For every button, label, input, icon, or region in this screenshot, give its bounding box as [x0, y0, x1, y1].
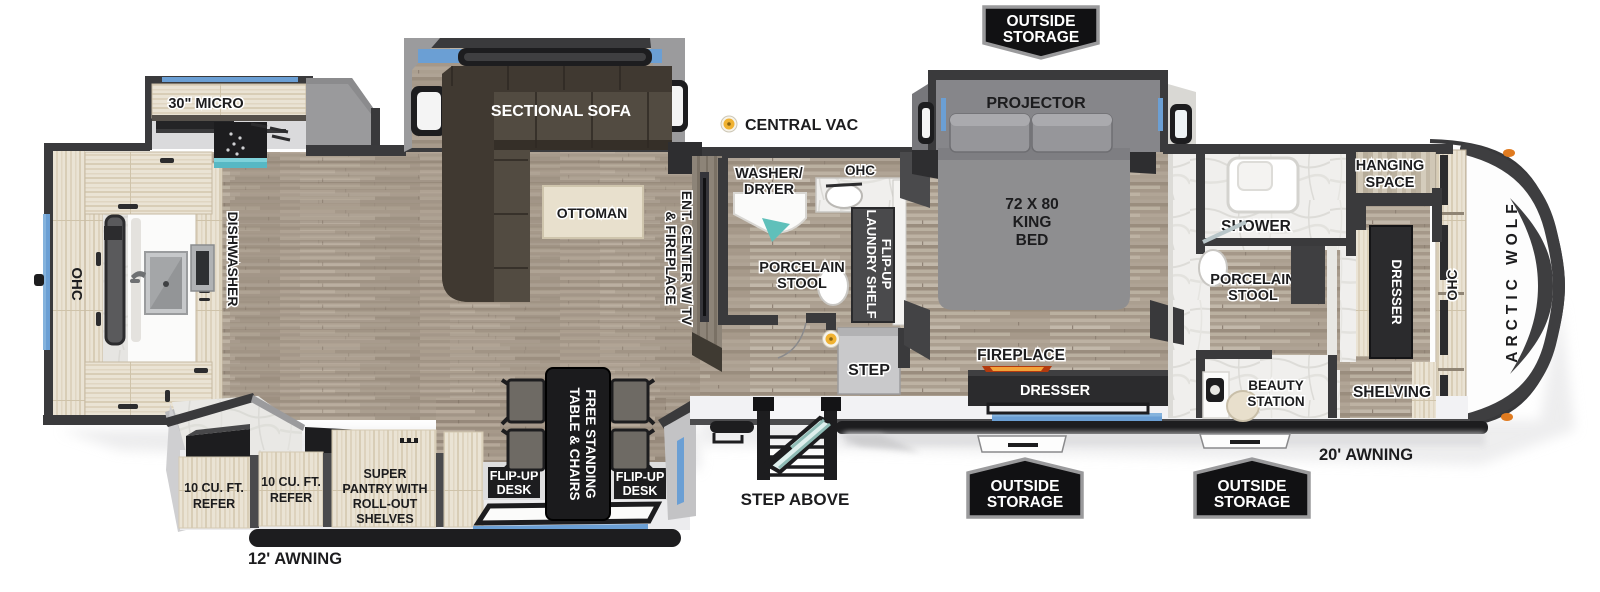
- svg-text:SECTIONAL SOFA: SECTIONAL SOFA: [491, 103, 632, 120]
- svg-text:STOOL: STOOL: [777, 276, 827, 292]
- svg-text:STORAGE: STORAGE: [1003, 29, 1079, 46]
- svg-text:ARCTIC WOLF: ARCTIC WOLF: [1504, 199, 1521, 362]
- svg-text:ENT. CENTER W/ TV: ENT. CENTER W/ TV: [679, 191, 695, 326]
- svg-text:ROLL-OUT: ROLL-OUT: [353, 497, 418, 511]
- svg-text:BEAUTY: BEAUTY: [1248, 378, 1304, 393]
- svg-text:30" MICRO: 30" MICRO: [168, 96, 243, 112]
- svg-text:BED: BED: [1016, 232, 1049, 249]
- svg-text:DRESSER: DRESSER: [1389, 259, 1404, 325]
- svg-text:DRESSER: DRESSER: [1020, 383, 1091, 399]
- svg-text:DESK: DESK: [623, 484, 658, 498]
- svg-text:& FIREPLACE: & FIREPLACE: [663, 211, 679, 304]
- svg-text:STEP ABOVE: STEP ABOVE: [741, 490, 850, 509]
- svg-text:WASHER/: WASHER/: [735, 166, 803, 182]
- svg-text:DESK: DESK: [497, 483, 532, 497]
- svg-text:DRYER: DRYER: [744, 182, 795, 198]
- svg-text:OHC: OHC: [1444, 269, 1460, 300]
- svg-text:STATION: STATION: [1247, 394, 1304, 409]
- svg-text:STEP: STEP: [848, 362, 890, 379]
- svg-text:FLIP-UP: FLIP-UP: [879, 239, 894, 290]
- svg-text:STORAGE: STORAGE: [987, 494, 1063, 511]
- svg-text:OUTSIDE: OUTSIDE: [991, 478, 1060, 495]
- svg-text:FIREPLACE: FIREPLACE: [977, 347, 1065, 364]
- svg-text:OHC: OHC: [845, 163, 875, 178]
- svg-text:PORCELAIN: PORCELAIN: [759, 260, 844, 276]
- svg-text:REFER: REFER: [193, 497, 235, 511]
- svg-text:OTTOMAN: OTTOMAN: [557, 205, 628, 221]
- svg-text:20' AWNING: 20' AWNING: [1319, 446, 1413, 464]
- svg-text:SPACE: SPACE: [1366, 175, 1415, 191]
- svg-text:PROJECTOR: PROJECTOR: [986, 95, 1086, 112]
- svg-text:DISHWASHER: DISHWASHER: [225, 212, 241, 307]
- svg-text:SUPER: SUPER: [363, 467, 406, 481]
- svg-text:LAUNDRY SHELF: LAUNDRY SHELF: [864, 209, 879, 318]
- svg-text:REFER: REFER: [270, 491, 312, 505]
- svg-text:PANTRY WITH: PANTRY WITH: [342, 482, 427, 496]
- svg-text:SHELVES: SHELVES: [356, 512, 413, 526]
- svg-text:OHC: OHC: [68, 267, 85, 301]
- svg-text:KING: KING: [1013, 214, 1052, 231]
- svg-text:72 X 80: 72 X 80: [1005, 196, 1058, 213]
- svg-text:10 CU. FT.: 10 CU. FT.: [261, 475, 321, 489]
- svg-text:FLIP-UP: FLIP-UP: [616, 470, 665, 484]
- svg-text:12' AWNING: 12' AWNING: [248, 550, 342, 568]
- svg-text:TABLE & CHAIRS: TABLE & CHAIRS: [567, 388, 582, 501]
- svg-text:SHELVING: SHELVING: [1353, 384, 1431, 401]
- svg-text:CENTRAL VAC: CENTRAL VAC: [745, 117, 859, 134]
- svg-text:OUTSIDE: OUTSIDE: [1007, 13, 1076, 30]
- svg-text:STOOL: STOOL: [1228, 288, 1278, 304]
- svg-text:STORAGE: STORAGE: [1214, 494, 1290, 511]
- svg-text:HANGING: HANGING: [1356, 158, 1424, 174]
- svg-text:10 CU. FT.: 10 CU. FT.: [184, 481, 244, 495]
- svg-text:FREE STANDING: FREE STANDING: [583, 389, 598, 498]
- svg-text:PORCELAIN: PORCELAIN: [1210, 272, 1295, 288]
- svg-text:OUTSIDE: OUTSIDE: [1218, 478, 1287, 495]
